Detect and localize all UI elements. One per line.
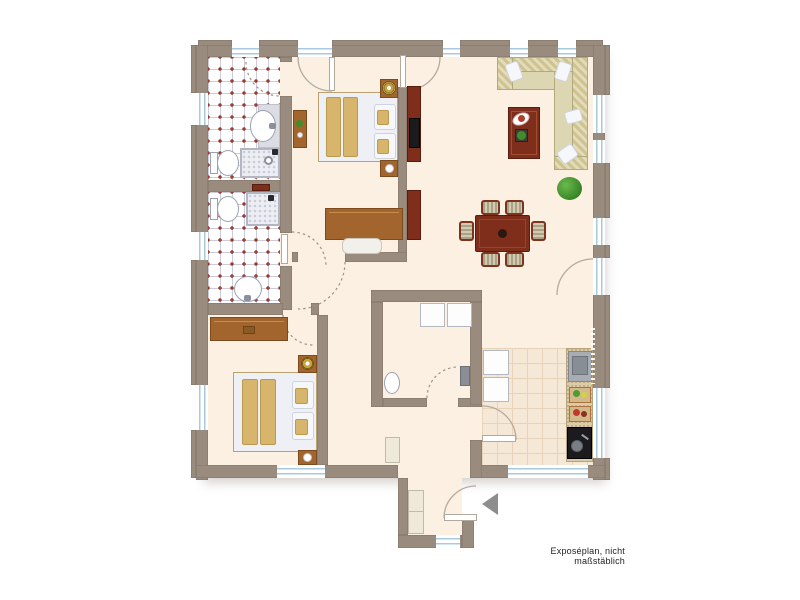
dining-chair [531,221,546,241]
hall-wardrobe [408,490,424,534]
bed-blanket [326,97,341,157]
door-arcs-layer [0,0,800,600]
bed-cushion [295,388,308,404]
table-bowl-icon [498,229,507,238]
dryer-icon [447,303,472,327]
lamp-icon [382,81,396,95]
door-arc-hall [298,262,345,309]
kitchen-cabinet-icon [483,377,509,402]
door-arc-terrace [557,259,593,295]
lamp-icon [301,357,314,370]
sideboard-handle [243,326,255,334]
fridge-icon [483,350,509,375]
door-arc-storage [427,367,458,398]
door-leaf-bedroom-top [400,55,406,88]
bed-cushion [377,110,389,125]
hall-cabinet [385,437,400,463]
tray-item-icon [518,115,525,122]
table-plant-icon [517,131,526,140]
kitchen-sink-basin-icon [572,356,588,375]
dining-chair [505,200,524,215]
shelf-vase-icon [297,132,303,138]
door-leaf-bath-middle [281,234,288,264]
toilet-icon [217,196,239,222]
door-leaf-entrance [444,514,477,521]
nightstand-dish-icon [385,164,394,173]
faucet-icon [244,295,251,301]
shower-icon [246,192,280,226]
washer-icon [420,303,445,327]
toilet-icon [217,150,239,176]
entrance-arrow-icon [482,493,498,515]
door-leaf-balcony [329,57,335,91]
shower-head-icon [272,149,278,155]
door-arc-bath-middle [292,232,326,266]
boiler-icon [460,366,470,386]
wash-basin-icon [384,372,400,394]
dining-chair [481,252,500,267]
floor-plan: Exposéplan, nicht maßstäblich [0,0,800,600]
shower-head-icon [268,195,274,201]
vegetables-yellow-icon [581,392,587,398]
cutting-board-icon [569,387,591,403]
dining-chair [459,221,474,241]
tv-icon [409,118,420,148]
cutting-board-icon [569,406,591,422]
nightstand-dish-icon [303,453,312,462]
wardrobe-divider [408,511,424,512]
vegetables-red-icon [581,411,587,417]
potted-plant-icon [557,177,582,200]
vegetables-green-icon [573,390,580,397]
vegetables-red-icon [573,409,580,416]
wall-shelf [293,110,307,148]
bed-blanket [260,379,276,445]
door-arc-balcony [298,57,332,91]
faucet-icon [269,123,276,129]
dining-chair [505,252,524,267]
pan-icon [571,440,583,452]
bed-cushion [295,419,308,435]
sideboard-cabinet [407,190,421,240]
bed-blanket [242,379,258,445]
shower-drain-icon [264,156,273,165]
shelf-plant-icon [296,120,303,127]
bed-cushion [377,139,389,154]
sideboard-edge [214,321,284,322]
door-arc-bath-top [246,62,280,96]
door-leaf-kitchen [482,435,516,442]
vertical-watermark [591,328,595,384]
bath-shelf [252,184,270,191]
caption: Exposéplan, nicht maßstäblich [505,546,625,566]
desk-bench [342,238,382,254]
desk-edge [329,212,399,213]
bed-blanket [343,97,358,157]
dining-chair [481,200,500,215]
